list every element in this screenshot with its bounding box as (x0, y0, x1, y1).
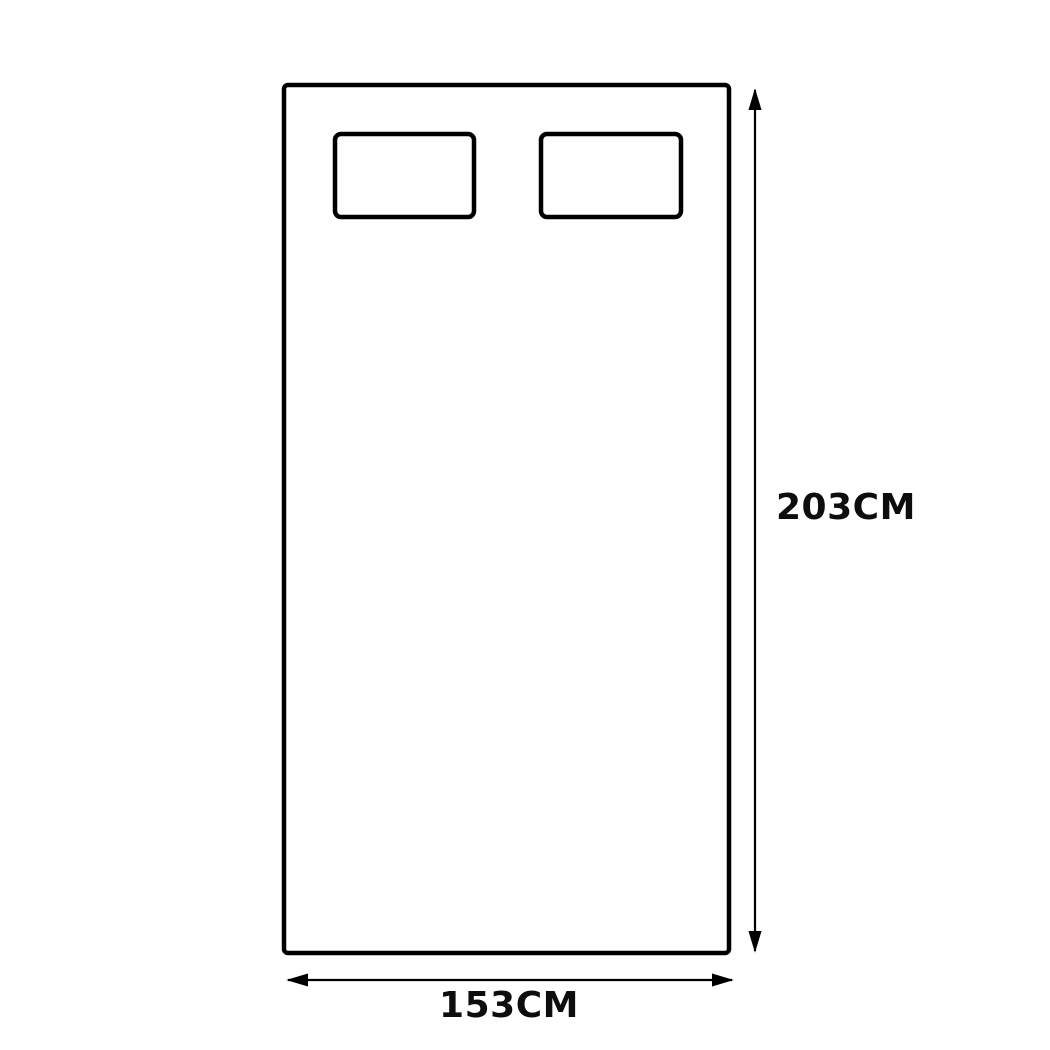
pillow-left-outline (335, 134, 474, 217)
diagram-svg: 203CM 153CM (0, 0, 1050, 1050)
pillow-right-outline (541, 134, 681, 217)
width-dimension-label: 153CM (439, 985, 579, 1026)
height-dimension-label: 203CM (776, 487, 916, 528)
dimension-diagram: 203CM 153CM (0, 0, 1050, 1050)
